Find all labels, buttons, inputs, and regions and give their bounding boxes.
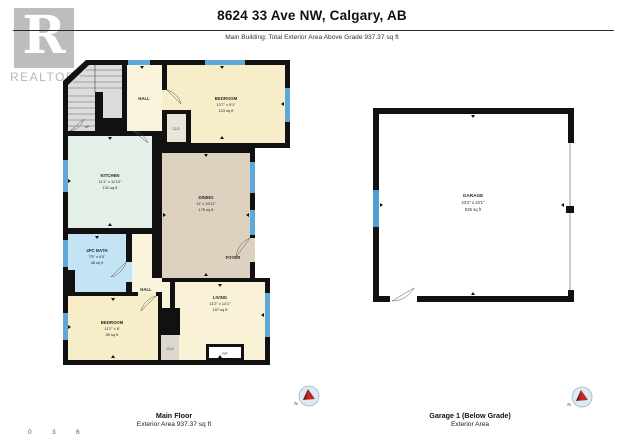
svg-text:11'2" x 8': 11'2" x 8': [104, 326, 120, 331]
svg-text:11'1" x 11'10": 11'1" x 11'10": [99, 179, 123, 184]
svg-text:23'2" x 23'1": 23'2" x 23'1": [462, 200, 485, 205]
scale-tick-6: 6: [76, 429, 80, 436]
main-floor-area: Exterior Area 937.37 sq ft: [64, 421, 284, 428]
svg-text:BEDROOM: BEDROOM: [101, 320, 124, 325]
main-floor-title: Main Floor: [64, 411, 284, 420]
wall: [63, 131, 153, 136]
garage-area: Exterior Area: [360, 421, 580, 428]
svg-text:13'7" x 9'1": 13'7" x 9'1": [216, 102, 236, 107]
svg-text:N: N: [294, 401, 297, 406]
svg-text:175 sq ft: 175 sq ft: [199, 207, 215, 212]
main-floor-caption: Main Floor Exterior Area 937.37 sq ft: [64, 411, 284, 428]
label-fireplace: F/P: [222, 352, 228, 356]
wall: [152, 131, 158, 278]
wall: [162, 278, 270, 282]
svg-text:48 sq ft: 48 sq ft: [91, 260, 105, 265]
svg-text:11' x 15'11": 11' x 15'11": [196, 201, 216, 206]
label-closet-top: CLO: [173, 127, 180, 131]
svg-text:11'2" x 14'1": 11'2" x 14'1": [209, 301, 231, 306]
floorplan-drawing: UP HALL CLO BEDROOM 13'7" x 9'1" 123 sq …: [0, 0, 624, 442]
garage-title: Garage 1 (Below Grade): [360, 411, 580, 420]
svg-text:GARAGE: GARAGE: [463, 193, 484, 198]
svg-text:LIVING: LIVING: [213, 295, 228, 300]
wall: [63, 228, 153, 234]
room-garage: [379, 114, 568, 296]
label-closet-bottom: CLO: [167, 347, 174, 351]
scale-tick-3: 3: [52, 429, 56, 436]
wall: [63, 270, 75, 292]
floorplan-page: R REALTOR® 8624 33 Ave NW, Calgary, AB M…: [0, 0, 624, 442]
label-stairs-up: UP: [85, 125, 90, 129]
window: [373, 190, 379, 227]
svg-text:131 sq ft: 131 sq ft: [103, 185, 119, 190]
label-foyer: FOYER: [226, 255, 242, 260]
wall: [170, 278, 175, 312]
svg-text:7'5" x 6'5": 7'5" x 6'5": [88, 254, 106, 259]
garage-caption: Garage 1 (Below Grade) Exterior Area: [360, 411, 580, 428]
scale-tick-0: 0: [28, 429, 32, 436]
svg-text:4PC BATH: 4PC BATH: [86, 248, 107, 253]
label-hall-bottom: HALL: [140, 287, 152, 292]
svg-text:N: N: [567, 402, 570, 407]
svg-text:157 sq ft: 157 sq ft: [213, 307, 229, 312]
compass-main-icon: N: [294, 386, 319, 406]
wall: [158, 308, 180, 335]
svg-text:BEDROOM: BEDROOM: [215, 96, 238, 101]
wall: [566, 206, 574, 213]
compass-garage-icon: N: [567, 387, 592, 407]
svg-text:89 sq ft: 89 sq ft: [106, 332, 120, 337]
wall-stair-core: [95, 92, 103, 120]
svg-text:KITCHEN: KITCHEN: [100, 173, 119, 178]
svg-text:DINING: DINING: [198, 195, 214, 200]
label-hall-top: HALL: [138, 96, 150, 101]
svg-text:535 sq ft: 535 sq ft: [465, 207, 482, 212]
svg-text:123 sq ft: 123 sq ft: [219, 108, 235, 113]
label-dining: DINING 11' x 15'11" 175 sq ft: [196, 195, 216, 212]
